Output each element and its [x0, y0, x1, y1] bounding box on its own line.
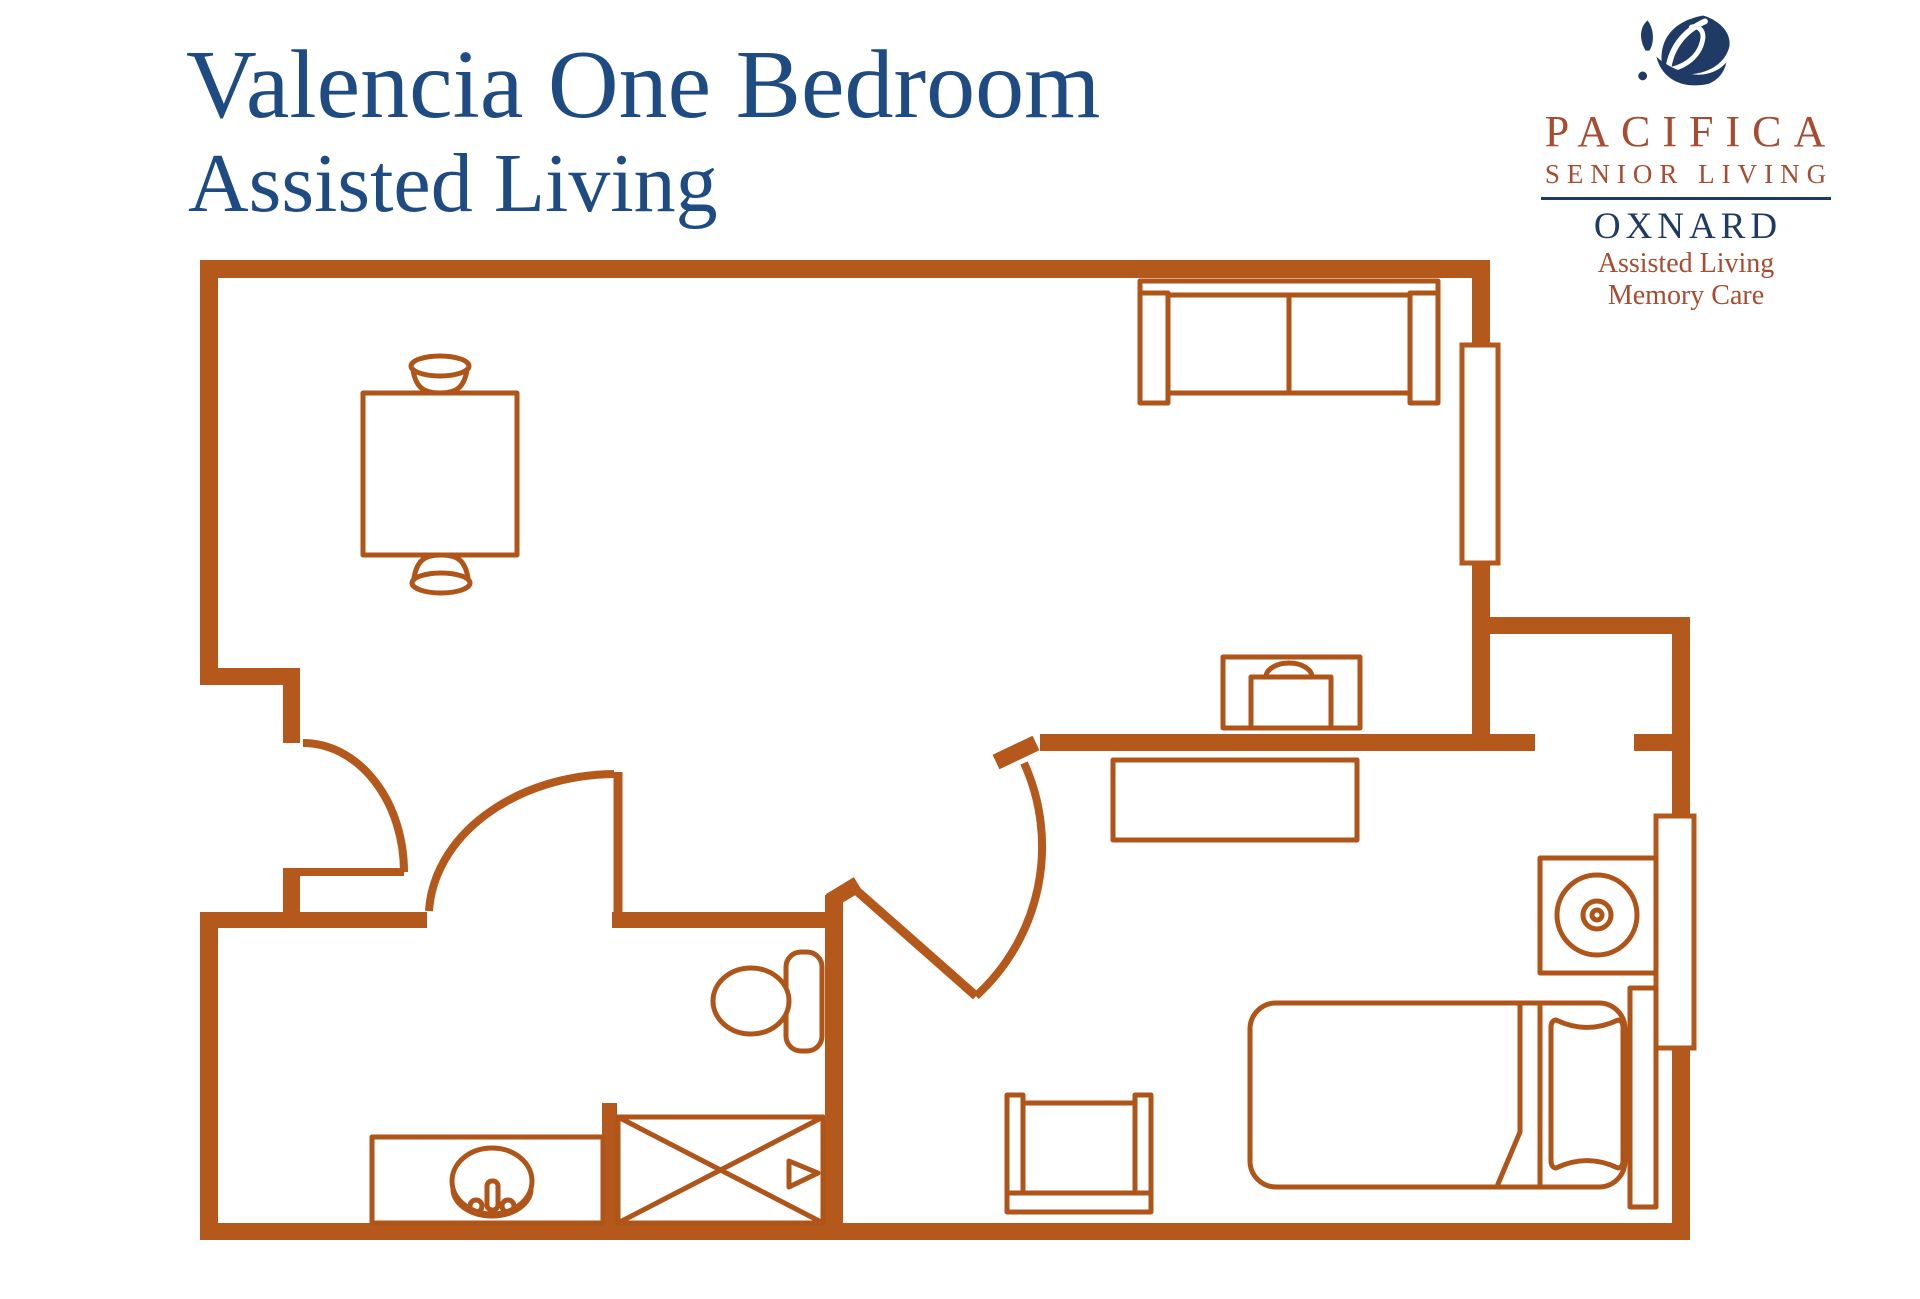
brand-tagline: SENIOR LIVING: [1506, 159, 1872, 190]
headboard: [1630, 988, 1656, 1207]
wall-bath-right: [825, 895, 843, 1240]
bathroom-door-swing: [429, 774, 614, 911]
bed: [1250, 988, 1656, 1207]
wall-left-upper: [200, 260, 218, 685]
bedroom-door-swing: [976, 763, 1042, 996]
wall-bath-top-right: [612, 912, 843, 928]
dining-chair-bottom: [412, 555, 470, 593]
toilet: [713, 952, 822, 1051]
toilet-bowl: [713, 968, 789, 1034]
accent-chair: [1223, 657, 1360, 728]
bedroom-door: [849, 763, 1042, 996]
brand-service-2: Memory Care: [1500, 280, 1872, 312]
leaf-icon: [1630, 8, 1742, 102]
window-bedroom: [1656, 816, 1694, 1048]
brand-logo: PACIFICA SENIOR LIVING OXNARD Assisted L…: [1500, 8, 1872, 312]
floor-plan-page: Valencia One Bedroom Assisted Living PAC…: [0, 0, 1920, 1299]
wall-closet-top: [1490, 617, 1690, 634]
wall-bedroom-top: [1040, 734, 1535, 751]
brand-service-1: Assisted Living: [1500, 248, 1872, 280]
media-dresser: [1113, 760, 1357, 840]
sofa-arm-left: [1140, 293, 1168, 403]
window-living: [1462, 345, 1498, 563]
sofa-back: [1140, 281, 1438, 295]
wall-entry-stub: [283, 868, 300, 917]
wall-bottom: [200, 1223, 1690, 1240]
wall-closet-stub: [1634, 734, 1672, 751]
nightstand-with-lamp: [1540, 858, 1656, 973]
brand-location: OXNARD: [1504, 205, 1872, 248]
vanity-sink: [372, 1137, 603, 1223]
wall-entry-jog: [200, 668, 300, 685]
page-header: Valencia One Bedroom Assisted Living: [186, 36, 1100, 226]
wall-top: [200, 260, 1490, 278]
shower: [618, 1117, 823, 1223]
brand-name: PACIFICA: [1510, 106, 1872, 157]
logo-divider: [1541, 197, 1831, 200]
pillow: [1551, 1020, 1623, 1168]
doors: [300, 743, 1042, 996]
bathroom-door: [429, 772, 618, 914]
page-title: Valencia One Bedroom: [186, 36, 1100, 134]
bedroom-door-leaf: [849, 884, 976, 996]
bench: [1007, 1095, 1151, 1212]
wall-entry-pillar: [283, 685, 300, 743]
dining-chair-top: [411, 356, 469, 393]
entry-door-swing: [303, 743, 404, 872]
faucet-icon: [487, 1181, 498, 1210]
page-subtitle: Assisted Living: [188, 142, 1100, 226]
sofa: [1140, 281, 1438, 403]
wall-chamfer-bedroom-jamb: [996, 743, 1036, 762]
sofa-arm-right: [1410, 293, 1438, 403]
dining-table: [363, 393, 517, 555]
wall-left-lower: [200, 912, 218, 1240]
wall-bath-top-left: [200, 912, 427, 928]
entry-door: [300, 743, 404, 872]
